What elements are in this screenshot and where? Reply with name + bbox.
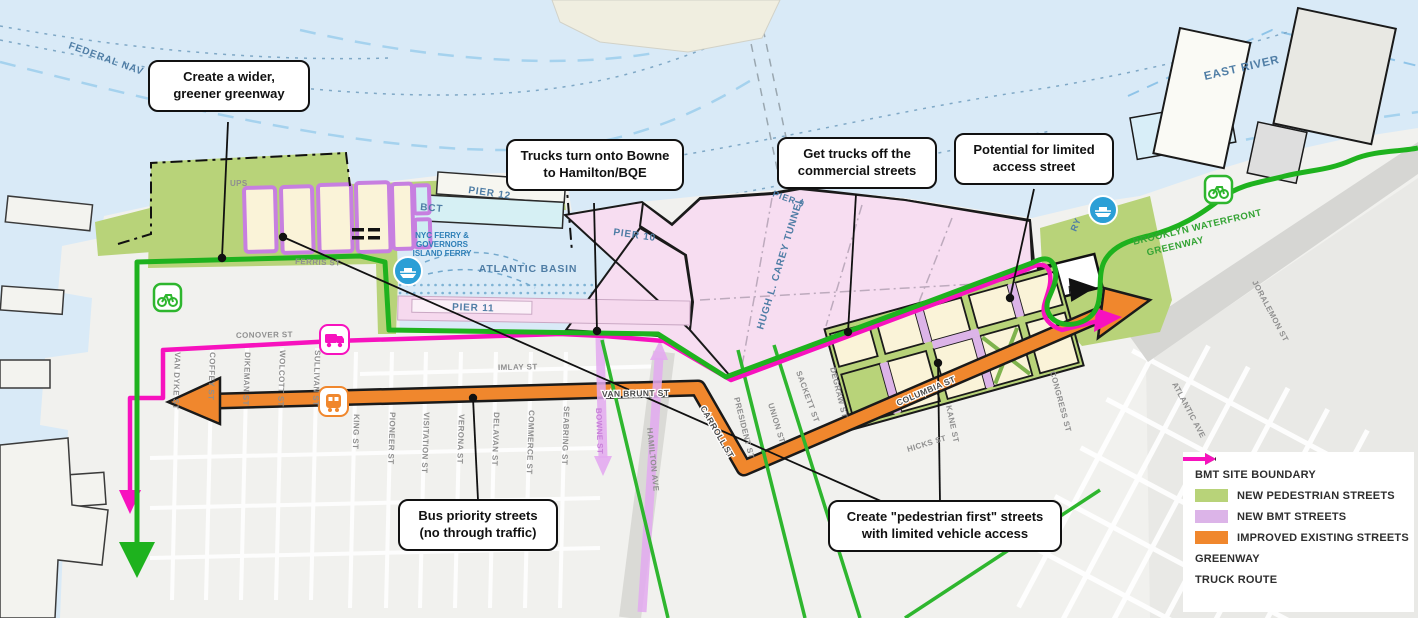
legend-label: TRUCK ROUTE bbox=[1195, 574, 1277, 586]
truck-route-arrow-sample bbox=[1183, 452, 1216, 465]
green-swatch bbox=[1195, 489, 1228, 502]
callout-text: (no through traffic) bbox=[410, 525, 546, 542]
label-pier-11: PIER 11 bbox=[452, 302, 495, 314]
legend-label: BMT SITE BOUNDARY bbox=[1195, 469, 1316, 481]
svg-text:ISLAND FERRY: ISLAND FERRY bbox=[413, 249, 472, 258]
bicycle-icon bbox=[154, 284, 181, 311]
label-bct: BCT bbox=[420, 202, 444, 215]
label-dikeman-st: DIKEMAN ST bbox=[241, 352, 252, 406]
label-king-st: KING ST bbox=[351, 414, 361, 450]
callout-text: Create a wider, bbox=[160, 69, 298, 86]
label-van-brunt-st: VAN BRUNT ST bbox=[602, 388, 670, 399]
callout-bus-priority: Bus priority streets (no through traffic… bbox=[398, 499, 558, 551]
callout-text: Potential for limited bbox=[966, 142, 1102, 159]
bus-icon bbox=[319, 387, 348, 416]
ferry-icon bbox=[1089, 196, 1117, 224]
callout-text: greener greenway bbox=[160, 86, 298, 103]
label-ferris-st: FERRIS ST bbox=[295, 257, 341, 268]
svg-text:NYC FERRY &: NYC FERRY & bbox=[415, 231, 469, 240]
label-conover-st: CONOVER ST bbox=[236, 330, 293, 340]
label-imlay-st: IMLAY ST bbox=[498, 362, 538, 372]
label-ups: UPS bbox=[230, 179, 248, 188]
bicycle-icon bbox=[1205, 176, 1232, 203]
label-pioneer-st: PIONEER ST bbox=[386, 412, 397, 465]
purple-swatch bbox=[1195, 510, 1228, 523]
callout-text: access street bbox=[966, 159, 1102, 176]
legend-row-truck-route: TRUCK ROUTE bbox=[1195, 569, 1404, 590]
legend-row-improved-streets: IMPROVED EXISTING STREETS bbox=[1195, 527, 1404, 548]
callout-trucks-bowne: Trucks turn onto Bowne to Hamilton/BQE bbox=[506, 139, 684, 191]
label-bowne-st: BOWNE ST bbox=[594, 408, 605, 455]
orange-swatch bbox=[1195, 531, 1228, 544]
callout-text: to Hamilton/BQE bbox=[518, 165, 672, 182]
callout-limited-access: Potential for limited access street bbox=[954, 133, 1114, 185]
pier11-band bbox=[398, 296, 690, 325]
label-delavan-st: DELAVAN ST bbox=[490, 412, 501, 466]
callout-trucks-off-commercial: Get trucks off the commercial streets bbox=[777, 137, 937, 189]
legend-label: NEW PEDESTRIAN STREETS bbox=[1237, 490, 1395, 502]
ups-bmt-blocks bbox=[244, 181, 431, 255]
callout-text: commercial streets bbox=[789, 163, 925, 180]
label-verona-st: VERONA ST bbox=[455, 414, 466, 464]
bmt-planning-map: FEDERAL NAV EAST RIVER HUGH L. CAREY TUN… bbox=[0, 0, 1418, 618]
callout-text: Bus priority streets bbox=[410, 508, 546, 525]
legend-row-site-boundary: BMT SITE BOUNDARY bbox=[1195, 464, 1404, 485]
callout-greener-greenway: Create a wider, greener greenway bbox=[148, 60, 310, 112]
svg-text:GOVERNORS: GOVERNORS bbox=[416, 240, 469, 249]
callout-text: Create "pedestrian first" streets bbox=[840, 509, 1050, 526]
callout-text: Trucks turn onto Bowne bbox=[518, 148, 672, 165]
legend-label: IMPROVED EXISTING STREETS bbox=[1237, 532, 1409, 544]
callout-text: with limited vehicle access bbox=[840, 526, 1050, 543]
callout-text: Get trucks off the bbox=[789, 146, 925, 163]
legend-row-greenway: GREENWAY bbox=[1195, 548, 1404, 569]
legend: BMT SITE BOUNDARY NEW PEDESTRIAN STREETS… bbox=[1183, 452, 1414, 612]
callout-pedestrian-first: Create "pedestrian first" streets with l… bbox=[828, 500, 1062, 552]
ferry-icon bbox=[394, 257, 422, 285]
legend-label: NEW BMT STREETS bbox=[1237, 511, 1346, 523]
label-coffey-st: COFFEY ST bbox=[206, 352, 217, 401]
legend-row-pedestrian-streets: NEW PEDESTRIAN STREETS bbox=[1195, 485, 1404, 506]
legend-row-bmt-streets: NEW BMT STREETS bbox=[1195, 506, 1404, 527]
label-atlantic-basin: ATLANTIC BASIN bbox=[479, 263, 578, 275]
label-nyc-ferry: NYC FERRY & GOVERNORS ISLAND FERRY bbox=[413, 231, 472, 258]
legend-label: GREENWAY bbox=[1195, 553, 1260, 565]
truck-icon bbox=[320, 325, 349, 354]
